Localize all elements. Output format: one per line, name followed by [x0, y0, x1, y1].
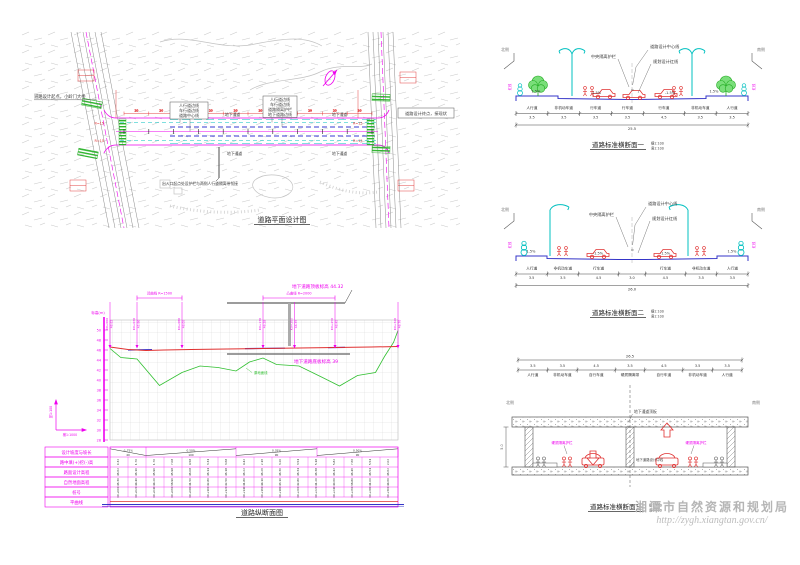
lane-width: 3.5 [593, 116, 599, 120]
lane-name: 非机动车道 [553, 372, 572, 377]
lane-name: 人行道 [722, 372, 733, 377]
legend-left-line3: 道路中心线 [179, 112, 199, 118]
design-elev-value: 46.38 [314, 468, 318, 476]
station-label: K0+240 [332, 486, 336, 498]
elev-tick-label: 40 [97, 378, 101, 382]
barrier-label-right: 硬质隔离护栏 [686, 440, 707, 445]
ground-elev-value: 42.50 [224, 478, 228, 486]
station-label: K0+020 [134, 486, 138, 498]
slope-length: 100 [188, 453, 194, 457]
station-label: K0+260 [350, 486, 354, 498]
radius-label-3: R=15 [353, 122, 363, 126]
cutfill-value: 3.54 [296, 459, 300, 465]
lane-name: 人行道 [727, 266, 738, 271]
lane-name: 非机动车道 [688, 372, 707, 377]
design-elev-value: 46.14 [206, 468, 210, 476]
flag-station: K0+205 [290, 318, 294, 330]
flag-station: K0+080 [177, 318, 181, 330]
ground-elev-value: 41.50 [188, 478, 192, 486]
shrubs [521, 241, 744, 255]
slope-road-left: -1.5% [593, 252, 604, 256]
cutfill-value: 4.42 [242, 459, 246, 465]
slope-walk-right: 1.5% [710, 90, 720, 94]
lane-name: 人行道 [727, 105, 738, 110]
design-elev-value: 46.08 [188, 468, 192, 476]
boundary-marks [504, 213, 762, 229]
plan-note: 出入口起点处设护栏与两侧人行道隔离带衔接 [162, 181, 238, 186]
section1-scale-h: 横1:100 [651, 141, 664, 146]
slope-road-right: -1.5% [660, 252, 671, 256]
station-label: K0+080 [188, 486, 192, 498]
slope-road-left: -1.5% [591, 91, 602, 95]
elev-tick-label: 50 [97, 328, 101, 332]
side-right-label: 南侧 [757, 206, 765, 212]
station-label: K0+200 [296, 486, 300, 498]
station-label: K0+000 [116, 486, 120, 498]
section2-title: 道路标准横断面二 [592, 308, 645, 317]
side-left-label: 北侧 [501, 46, 509, 52]
cutfill-value: 5.54 [368, 459, 372, 465]
redline-side-left: 红线 [507, 241, 512, 248]
cutfill-value: 7.66 [350, 459, 354, 465]
flag-station: K0+170 [258, 318, 262, 330]
lane-name: 人行道 [526, 105, 537, 110]
lane-width: 3.5 [529, 276, 535, 280]
elev-tick-label: 42 [97, 368, 101, 372]
ground-elev-value: 38.80 [350, 478, 354, 486]
elev-tick-label: 30 [97, 428, 101, 432]
lane-name: 行车道 [593, 266, 604, 271]
cross-section-1: 北侧 南侧 红线 红线 道路设计中心线 中央隔离护栏 规划设计红线 1.5% 1… [498, 35, 768, 165]
slope-walk-left: 1.5% [532, 90, 542, 94]
ground-elev-value: 44.10 [260, 478, 264, 486]
total-width: 26.5 [626, 355, 635, 359]
underpass-label-3: 地下通道 [332, 112, 347, 117]
design-elev-value: 46.10 [134, 468, 138, 476]
lane-width: 3.5 [698, 276, 704, 280]
flag-station: K0+250 [330, 318, 334, 330]
radius-label-2: R=15 [94, 139, 104, 143]
plan-end-label: 道路设计终点，接现状 [405, 110, 448, 117]
slope-length: 90 [356, 453, 360, 457]
lane-width: 4.5 [661, 364, 667, 368]
lane-name: 非机动车道 [691, 105, 710, 110]
underpass-label-4: 地下通道 [332, 151, 347, 156]
cutfill-value: 2.02 [386, 459, 390, 465]
side-right-label: 南侧 [757, 46, 765, 52]
lane-name: 硬质隔离带 [621, 372, 640, 377]
cutfill-value: 3.20 [278, 459, 282, 465]
slope-grade: 0.35% [272, 448, 281, 452]
station-label: K0+140 [242, 486, 246, 498]
side-left-label: 北侧 [501, 206, 509, 212]
design-elev-value: 45.90 [152, 468, 156, 476]
underpass-label-1: 地下通道 [225, 112, 240, 117]
cutfill-value: 0.32 [116, 459, 120, 465]
station-label: K0+060 [170, 486, 174, 498]
cutfill-value: 7.08 [170, 459, 174, 465]
annotation-leaders [618, 50, 651, 93]
lane-width: 4.5 [663, 276, 669, 280]
cutfill-value: 2.16 [260, 459, 264, 465]
lane-name: 行车道 [660, 266, 671, 271]
profile-scale-axes [55, 400, 86, 431]
slope-grade: 0.50% [353, 448, 362, 452]
lane-width: 3.5 [730, 276, 736, 280]
lane-name: 行车道 [658, 105, 669, 110]
redline-side-left: 红线 [507, 83, 512, 90]
underpass-label-2: 地下通道 [227, 151, 242, 156]
flag-station: K0+030 [132, 318, 136, 330]
lane-width: 3.5 [627, 364, 633, 368]
design-elev-value: 46.22 [242, 468, 246, 476]
ground-elev-value: 40.60 [332, 478, 336, 486]
elev-tick-label: 38 [97, 388, 101, 392]
table-header-label: 路面设计高程 [64, 469, 90, 476]
lane-width: 3.5 [697, 116, 703, 120]
flag-elevation: 46.62 [110, 320, 114, 329]
ground-elev-value: 41.20 [314, 478, 318, 486]
cross-section-3: 人行道3.5非机动车道3.5自行车道4.5硬质隔离带3.5自行车道4.5非机动车… [498, 333, 768, 525]
lane-width: 4.5 [593, 364, 599, 368]
lane-name: 自行车道 [656, 372, 671, 377]
elev-tick-label: 34 [97, 408, 101, 412]
top-slab-label: 地下通道顶板 [634, 409, 657, 414]
watermark-url: http://zygh.xiangtan.gov.cn/ [626, 515, 798, 526]
elev-tick-label: 46 [97, 348, 101, 352]
lane-width: 3.5 [529, 116, 535, 120]
cutfill-value: 5.18 [314, 459, 318, 465]
lane-name: 行车道 [622, 105, 633, 110]
tunnel-centerline-label: 地下道路设计中线 [636, 457, 664, 462]
slope-grade: -1.75% [123, 448, 133, 452]
lane-name: 非机动车道 [692, 266, 711, 271]
design-elev-value: 46.62 [116, 468, 120, 476]
slope-walk-right: 1.5% [728, 250, 738, 254]
profile-scale-v: 竖1:100 [48, 406, 53, 418]
flag-elevation: 46.28 [263, 320, 267, 329]
dim-20m: 20 [258, 109, 262, 113]
total-width: 25.5 [628, 127, 637, 131]
watermark: 湘潭市自然资源和规划局 http://zygh.xiangtan.gov.cn/ [626, 498, 798, 526]
design-elev-value: 46.18 [224, 468, 228, 476]
lane-width: 3.5 [561, 116, 567, 120]
flag-station: K0+320 [393, 318, 397, 330]
cross-section-2: 北侧 南侧 红线 红线 道路设计中心线 中央隔离护栏 规划设计红线 1.5% 1… [498, 193, 768, 331]
legend-right-line4: 地下道路边线 [268, 111, 292, 117]
pedestrians [557, 246, 706, 256]
curve-label: 凸曲线 R=2000 [286, 291, 311, 296]
median-barrier-label: 中央隔离护栏 [589, 211, 614, 218]
slope-grade: 0.50% [187, 448, 196, 452]
flag-elevation: 45.90 [137, 320, 141, 329]
cutfill-value: 1.70 [134, 459, 138, 465]
tunnel-depth-dimension [504, 427, 509, 467]
lane-name: 行车道 [590, 105, 601, 110]
dim-20m: 20 [159, 109, 163, 113]
profile-title: 道路纵断面图 [241, 508, 283, 517]
design-elev-value: 46.26 [260, 468, 264, 476]
design-centerline-label: 道路设计中心线 [650, 43, 680, 50]
ground-elev-value: 42.80 [296, 478, 300, 486]
slope-length: 40 [126, 453, 130, 457]
dim-20m: 20 [308, 109, 312, 113]
design-centerline-label: 道路设计中心线 [648, 200, 678, 207]
flag-elevation: 46.35 [294, 320, 298, 329]
profile-scale-h: 横1:1000 [63, 432, 77, 437]
table-header-label: 桩号 [72, 489, 81, 496]
flag-station: K0+000 [105, 318, 109, 330]
ground-elev-value: 46.30 [116, 478, 120, 486]
curve-label: 凹曲线 R=1500 [147, 291, 172, 296]
ground-elev-value: 42.80 [206, 478, 210, 486]
lane-name: 非机动车道 [554, 266, 573, 271]
ground-line-label: 原地面线 [254, 370, 268, 375]
section2-scale-v: 竖1:100 [651, 314, 664, 319]
side-left-label: 北侧 [506, 399, 514, 405]
dim-20m: 20 [358, 109, 362, 113]
radius-label-4: R=15 [353, 139, 363, 143]
lane-name: 自行车道 [589, 372, 604, 377]
bottom-slab-elevation-label: 地下道路底板标高 39 [294, 358, 338, 365]
redline-side-right: 红线 [751, 241, 756, 248]
lane-width: 3.5 [625, 116, 631, 120]
lane-width: 3.5 [695, 364, 701, 368]
section2-scale-h: 横1:100 [651, 309, 664, 314]
lane-width: 3.0 [629, 276, 635, 280]
planning-redline-label: 规划设计红线 [652, 215, 678, 222]
radius-label-1: R=15 [94, 122, 104, 126]
planning-redline-label: 规划设计红线 [653, 58, 679, 65]
station-label: K0+180 [278, 486, 282, 498]
ground-elev-value: 44.60 [386, 478, 390, 486]
cutfill-value: 4.58 [188, 459, 192, 465]
boundary-marks [504, 53, 762, 69]
slope-length: 90 [275, 453, 279, 457]
table-header-label: 路中填(+)挖(-)高 [60, 459, 94, 466]
dimension-strip: 人行道3.5非机动车道3.5行车道4.53.0行车道4.5非机动车道3.5人行道… [515, 266, 750, 292]
lane-width: 4.5 [661, 116, 667, 120]
flag-elevation: 46.70 [398, 320, 402, 329]
section1-title: 道路标准横断面一 [592, 140, 645, 149]
lane-width: 3.5 [560, 276, 566, 280]
table-header-label: 平曲线 [70, 499, 84, 506]
ground-elev-value: 44.20 [152, 478, 156, 486]
lane-width: 3.5 [729, 116, 735, 120]
barrier-label-left: 硬质隔离护栏 [552, 440, 573, 445]
dimension-strip: 人行道3.5非机动车道3.5自行车道4.5硬质隔离带3.5自行车道4.5非机动车… [517, 355, 744, 378]
plan-title: 道路平面设计图 [258, 215, 307, 224]
design-elev-value: 45.98 [170, 468, 174, 476]
station-label: K0+100 [206, 486, 210, 498]
ground-elev-value: 38.90 [170, 478, 174, 486]
ground-elev-value: 44.40 [134, 478, 138, 486]
design-elev-value: 46.34 [296, 468, 300, 476]
lane-width: 3.5 [560, 364, 566, 368]
slope-road-right: -1.5% [665, 91, 676, 95]
cutfill-value: 1.70 [152, 459, 156, 465]
elevation-axis-label: 标高(m) [91, 310, 105, 315]
watermark-agency: 湘潭市自然资源和规划局 [626, 498, 798, 515]
elev-tick-label: 36 [97, 398, 101, 402]
flag-elevation: 46.45 [335, 320, 339, 329]
ground-elev-value: 41.80 [242, 478, 246, 486]
flag-elevation: 46.05 [182, 320, 186, 329]
station-label: K0+300 [386, 486, 390, 498]
elev-tick-label: 44 [97, 358, 101, 362]
slope-walk-left: 1.5% [527, 250, 537, 254]
design-elev-value: 46.54 [368, 468, 372, 476]
tunnel-structure [512, 417, 748, 475]
ground-elev-value: 43.10 [278, 478, 282, 486]
table-header-label: 设计坡度与坡长 [61, 449, 92, 456]
lane-name: 人行道 [526, 266, 537, 271]
station-label: K0+280 [368, 486, 372, 498]
total-width: 26.0 [628, 288, 637, 292]
station-label: K0+220 [314, 486, 318, 498]
station-label: K0+160 [260, 486, 264, 498]
profile-grid [110, 320, 398, 440]
dim-20m: 20 [209, 109, 213, 113]
design-elev-value: 46.30 [278, 468, 282, 476]
station-label: K0+120 [224, 486, 228, 498]
design-elev-value: 46.42 [332, 468, 336, 476]
redline-side-right: 红线 [751, 83, 756, 90]
lane-name: 人行道 [527, 372, 538, 377]
tunnel-depth-value: 5.0 [500, 444, 504, 449]
table-header-label: 自然地面高程 [64, 479, 90, 486]
ground-elev-value: 41.00 [368, 478, 372, 486]
design-elev-value: 46.46 [350, 468, 354, 476]
elev-tick-label: 28 [97, 438, 101, 442]
station-label: K0+040 [152, 486, 156, 498]
plan-start-label: 道路设计起点，小岭门大桥 [34, 93, 86, 100]
profile-drawing: 标高(m) 地下道路顶板标高 44.32 地下道路底板标高 39 原地面线 竖1… [40, 262, 410, 520]
cutfill-value: 3.68 [224, 459, 228, 465]
lane-width: 4.5 [596, 276, 602, 280]
lane-width: 3.5 [724, 364, 730, 368]
section1-scale-v: 竖1:100 [651, 146, 664, 151]
lane-name: 非机动车道 [555, 105, 574, 110]
dimension-strip: 人行道3.5非机动车道3.5行车道3.5行车道3.5行车道4.5非机动车道3.5… [515, 105, 750, 131]
elev-tick-label: 48 [97, 338, 101, 342]
design-elev-value: 46.62 [386, 468, 390, 476]
top-slab-elevation-label: 地下道路顶板标高 44.32 [292, 283, 343, 290]
median-barrier-label: 中央隔离护栏 [591, 53, 616, 60]
annotation-leaders [616, 207, 650, 253]
cutfill-value: 5.82 [332, 459, 336, 465]
cutfill-value: 3.34 [206, 459, 210, 465]
lane-width: 3.5 [530, 364, 536, 368]
side-right-label: 南侧 [752, 399, 760, 405]
street-lights [550, 205, 688, 256]
dim-20m: 20 [134, 109, 138, 113]
elev-tick-label: 32 [97, 418, 101, 422]
plan-view-drawing: 20202020202020202020 人行道边线 车行道边线 道路中心线 人… [20, 30, 460, 230]
